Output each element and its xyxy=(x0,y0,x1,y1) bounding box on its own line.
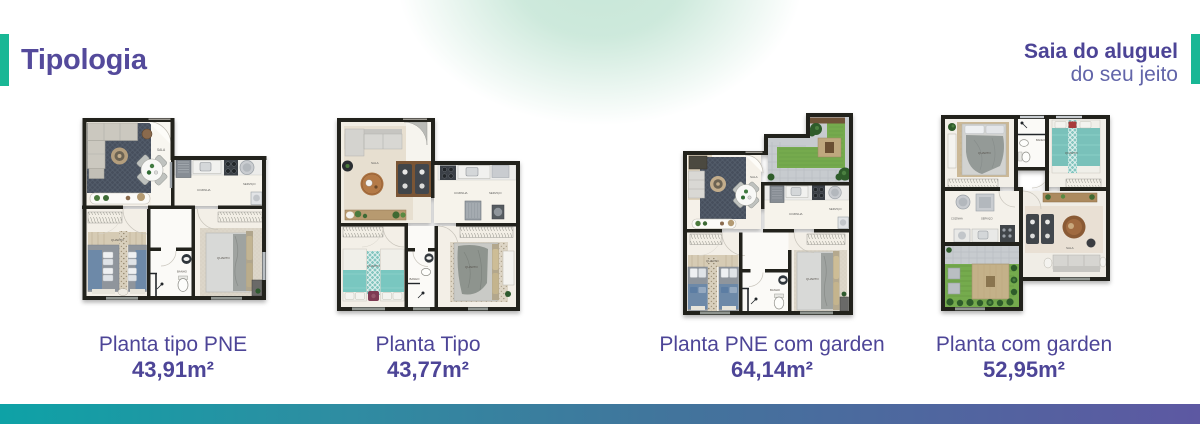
svg-text:SERVIÇO: SERVIÇO xyxy=(243,182,256,186)
svg-text:COZINHA: COZINHA xyxy=(454,191,468,195)
svg-text:SALA: SALA xyxy=(157,148,166,152)
svg-text:QUARTO: QUARTO xyxy=(706,259,719,263)
svg-text:SALA: SALA xyxy=(750,175,758,179)
svg-text:SALA: SALA xyxy=(1066,246,1074,250)
svg-text:QUARTO: QUARTO xyxy=(367,264,380,268)
svg-text:QUARTO: QUARTO xyxy=(806,277,819,281)
svg-text:SERVIÇO: SERVIÇO xyxy=(829,207,842,211)
svg-text:QUARTO: QUARTO xyxy=(217,256,230,260)
svg-text:BANHO: BANHO xyxy=(1036,138,1045,142)
svg-text:QUARTO: QUARTO xyxy=(465,265,478,269)
svg-text:SERVIÇO: SERVIÇO xyxy=(489,191,502,195)
svg-text:BANHO: BANHO xyxy=(770,288,781,292)
svg-text:SERVIÇO: SERVIÇO xyxy=(981,217,993,221)
svg-text:BANHO: BANHO xyxy=(410,277,421,281)
svg-text:QUARTO: QUARTO xyxy=(111,238,124,242)
svg-text:BANHO: BANHO xyxy=(177,270,188,274)
svg-text:COZINHA: COZINHA xyxy=(197,188,211,192)
svg-text:QUARTO: QUARTO xyxy=(978,151,991,155)
svg-text:SALA: SALA xyxy=(371,161,379,165)
svg-text:QUARTO: QUARTO xyxy=(1065,151,1078,155)
svg-text:COZINHA: COZINHA xyxy=(951,217,963,221)
svg-text:COZINHA: COZINHA xyxy=(789,212,803,216)
